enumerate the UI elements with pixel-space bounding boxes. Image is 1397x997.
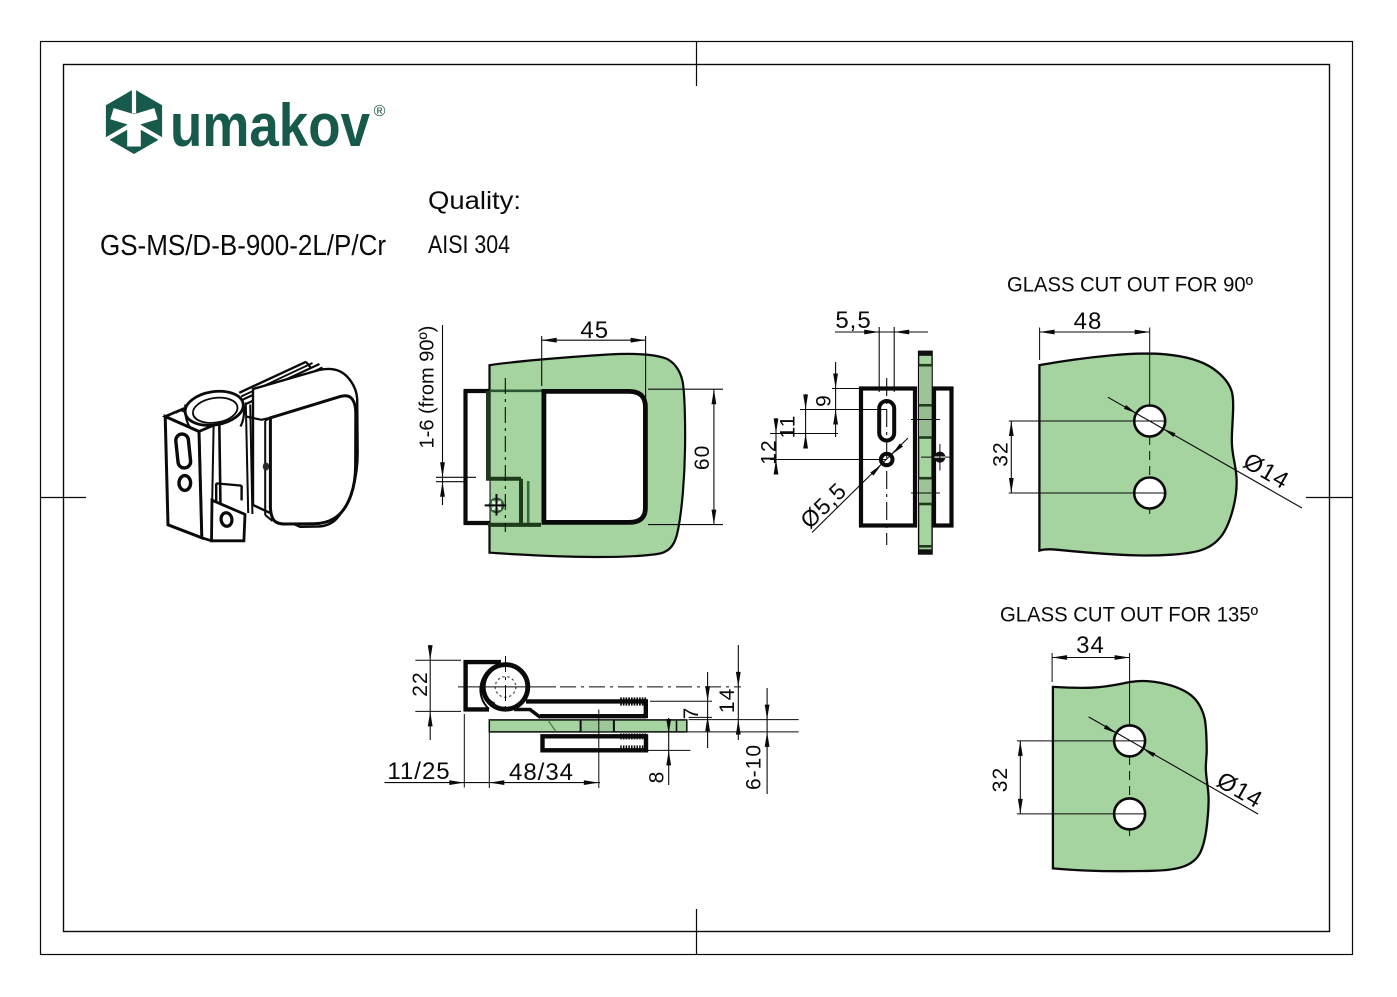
- svg-text:7: 7: [680, 707, 703, 720]
- svg-text:60: 60: [691, 445, 714, 470]
- svg-text:45: 45: [580, 317, 609, 344]
- svg-text:9: 9: [813, 394, 836, 407]
- svg-text:®: ®: [374, 103, 387, 120]
- svg-text:32: 32: [989, 767, 1012, 792]
- svg-text:32: 32: [989, 441, 1012, 466]
- svg-text:34: 34: [1076, 632, 1105, 659]
- svg-text:GLASS CUT OUT FOR 135º: GLASS CUT OUT FOR 135º: [1000, 604, 1258, 627]
- svg-text:8: 8: [646, 771, 669, 784]
- svg-text:12: 12: [758, 439, 781, 464]
- svg-text:48/34: 48/34: [509, 759, 574, 786]
- svg-text:umakov: umakov: [170, 92, 371, 159]
- svg-text:22: 22: [409, 671, 432, 696]
- svg-text:11/25: 11/25: [387, 758, 450, 785]
- svg-text:Quality:: Quality:: [428, 187, 521, 215]
- svg-text:5,5: 5,5: [835, 307, 871, 334]
- svg-text:GLASS CUT OUT FOR 90º: GLASS CUT OUT FOR 90º: [1007, 274, 1253, 297]
- svg-text:48: 48: [1074, 308, 1103, 335]
- svg-text:1-6 (from 90º): 1-6 (from 90º): [417, 326, 439, 449]
- svg-text:GS-MS/D-B-900-2L/P/Cr: GS-MS/D-B-900-2L/P/Cr: [100, 230, 386, 262]
- svg-text:6-10: 6-10: [743, 744, 766, 790]
- svg-text:11: 11: [777, 415, 800, 439]
- svg-text:14: 14: [716, 688, 739, 713]
- svg-text:AISI 304: AISI 304: [428, 231, 510, 259]
